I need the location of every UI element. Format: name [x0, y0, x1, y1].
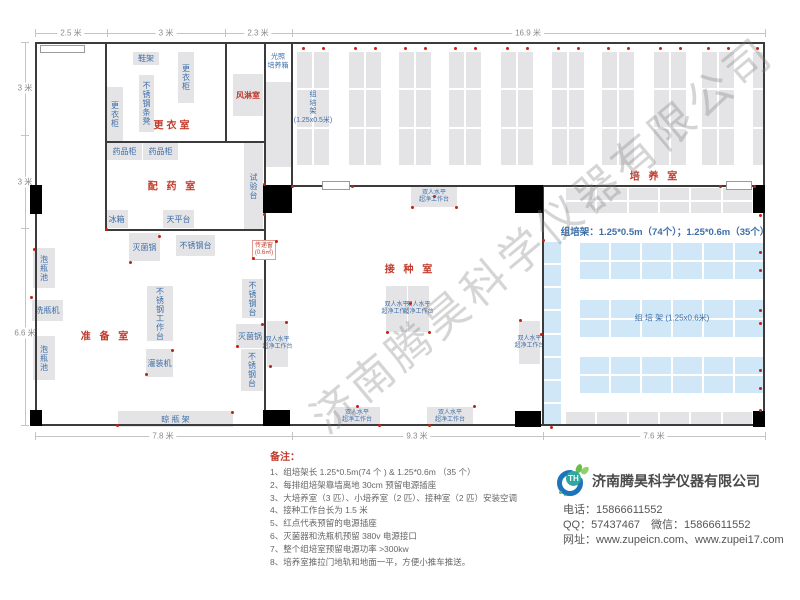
culture-rack [501, 52, 533, 165]
culture-rack [449, 52, 481, 165]
stainless-table: 不锈钢台 [242, 279, 263, 318]
rack-cell [642, 243, 671, 260]
rack-cell [544, 311, 561, 332]
dimension-tick [543, 432, 544, 440]
room-label: 更衣室 [154, 117, 193, 132]
power-socket-dot [707, 47, 710, 50]
company-phone: 电话：15866611552 [563, 501, 662, 517]
structural-column [515, 185, 543, 213]
sterilizer-pot: 灭菌锅 [236, 324, 264, 348]
rack-cell [580, 376, 609, 393]
rack-cell [704, 262, 733, 279]
wall [105, 141, 265, 143]
dimension-label: 3 米 [156, 28, 177, 39]
rack-cell [619, 129, 634, 165]
transfer-window: 传递窗(0.6㎡) [252, 240, 276, 260]
power-socket-dot [759, 214, 762, 217]
notes-list: 1、组培架长 1.25*0.5m(74 个 ) & 1.25*0.6m （35 … [270, 466, 517, 568]
structural-column [753, 411, 765, 427]
power-socket-dot [753, 185, 756, 188]
rack-cell [702, 129, 717, 165]
dimension-tick [35, 29, 36, 37]
rack-cell [671, 129, 686, 165]
locker-cabinet: 更衣柜 [178, 52, 194, 103]
wall [264, 42, 266, 426]
power-socket-dot [506, 47, 509, 50]
wall [105, 42, 107, 231]
dimension-label: 2.5 米 [57, 28, 84, 39]
structural-column [515, 411, 541, 427]
wall [35, 424, 765, 426]
rack-cell [416, 129, 431, 165]
rack-cell [642, 262, 671, 279]
power-socket-dot [474, 47, 477, 50]
wall [542, 185, 544, 426]
annotation-label: 组培架：1.25*0.5m（74个）；1.25*0.6m（35个） [561, 224, 770, 238]
power-socket-dot [374, 47, 377, 50]
rack-cell [691, 188, 720, 200]
rack-cell [314, 129, 329, 165]
bench-label: 超净工作台 [515, 343, 545, 350]
power-socket-dot [291, 185, 294, 188]
rack-cell [544, 381, 561, 402]
culture-rack-blue [580, 243, 764, 279]
rack-cell [566, 202, 595, 214]
power-socket-dot [550, 426, 553, 429]
power-socket-dot [607, 47, 610, 50]
rack-cell [673, 357, 702, 374]
rack-cell [366, 90, 381, 126]
power-socket-dot [473, 405, 476, 408]
power-socket-dot [659, 47, 662, 50]
rack-cell [544, 265, 561, 286]
rack-cell [704, 376, 733, 393]
rack-cell [660, 202, 689, 214]
rack-cell [597, 202, 626, 214]
balance-table: 天平台 [163, 210, 194, 228]
rack-cell [723, 202, 752, 214]
rack-cell [580, 320, 609, 338]
clean-bench: 双人水平超净工作台 [408, 286, 429, 332]
logo-dot [564, 494, 566, 496]
power-socket-dot [433, 195, 436, 198]
bench-label: 超净工作台 [435, 417, 465, 424]
rack-cell [466, 90, 481, 126]
rack-cell [501, 90, 516, 126]
power-socket-dot [386, 331, 389, 334]
rack-cell [619, 90, 634, 126]
rack-cell [580, 300, 609, 318]
structural-column [30, 185, 42, 214]
rack-cell [719, 52, 734, 88]
rack-cell [552, 90, 567, 126]
rack-cell [671, 52, 686, 88]
dimension-label: 2.3 米 [244, 28, 271, 39]
bench-label: 双人水平 [438, 410, 462, 417]
dimension-tick [765, 29, 766, 37]
structural-column [753, 185, 765, 213]
power-socket-dot [428, 331, 431, 334]
rack-cell [399, 129, 414, 165]
power-socket-dot [759, 309, 762, 312]
dimension-label: 3 米 [15, 83, 36, 94]
power-socket-dot [756, 47, 759, 50]
locker-cabinet: 更衣柜 [107, 87, 123, 141]
power-socket-dot [158, 235, 161, 238]
rack-cell [349, 129, 364, 165]
rack-cell [297, 129, 312, 165]
rack-cell [611, 243, 640, 260]
bench-label: 双人水平 [518, 336, 542, 343]
note-item: 1、组培架长 1.25*0.5m(74 个 ) & 1.25*0.6m （35 … [270, 466, 517, 479]
rack-cell [466, 129, 481, 165]
clean-bench: 双人水平超净工作台 [519, 321, 540, 364]
rack-cell [416, 90, 431, 126]
notes-title: 备注： [270, 448, 517, 463]
wall [35, 42, 37, 426]
dimension-tick [35, 432, 36, 440]
rack-cell [660, 188, 689, 200]
rack-cell [501, 129, 516, 165]
stainless-table: 不锈钢台 [241, 349, 263, 391]
note-item: 2、每排组培架靠墙离地 30cm 预留电源插座 [270, 479, 517, 492]
company-name: 济南腾昊科学仪器有限公司 [592, 471, 760, 491]
note-item: 8、培养室推拉门地轨和地面一平，方便小推车推送。 [270, 556, 517, 569]
light-incubator-box [266, 82, 291, 167]
dimension-label: 16.9 米 [512, 28, 544, 39]
power-socket-dot [105, 228, 108, 231]
power-socket-dot [557, 47, 560, 50]
room-label: 接 种 室 [385, 261, 436, 276]
room-label: 准 备 室 [81, 328, 132, 343]
rack-cell [544, 242, 561, 263]
transfer-window-label: 传递窗 [255, 243, 273, 250]
rack-cell [704, 357, 733, 374]
power-socket-dot [519, 319, 522, 322]
culture-rack [552, 52, 584, 165]
rack-cell [544, 335, 561, 356]
culture-rack [602, 52, 634, 165]
rack-cell [691, 202, 720, 214]
rack-cell [735, 376, 764, 393]
rack-cell [297, 52, 312, 88]
power-socket-dot [145, 373, 148, 376]
rack-cell [569, 52, 584, 88]
rack-cell [704, 243, 733, 260]
bench-label: 双人水平 [266, 337, 290, 344]
rack-cell [569, 90, 584, 126]
rack-cell [544, 358, 561, 379]
sterilizer-pot: 灭菌锅 [129, 233, 160, 261]
wall [225, 42, 227, 143]
wall [105, 229, 266, 231]
rack-cell [544, 288, 561, 309]
rack-cell [349, 90, 364, 126]
rack-cell [597, 188, 626, 200]
rack-cell [399, 52, 414, 88]
power-socket-dot [542, 239, 545, 242]
power-socket-dot [759, 387, 762, 390]
door [40, 45, 85, 53]
stainless-table: 不锈钢台 [176, 235, 215, 256]
medicine-cabinet: 药品柜 [143, 143, 178, 160]
transfer-window-label: (0.6㎡) [255, 250, 273, 257]
rack-cell [629, 188, 658, 200]
company-logo-icon: TH [556, 465, 590, 497]
power-socket-dot [252, 257, 255, 260]
power-socket-dot [455, 206, 458, 209]
power-socket-dot [354, 47, 357, 50]
dimension-tick [292, 432, 293, 440]
power-socket-dot [759, 369, 762, 372]
dimension-tick [765, 432, 766, 440]
note-item: 7、整个组培室预留电源功率 >300kw [270, 543, 517, 556]
power-socket-dot [727, 47, 730, 50]
power-socket-dot [261, 323, 264, 326]
bench-label: 超净工作台 [263, 344, 293, 351]
dimension-tick [225, 29, 226, 37]
culture-rack-blue [544, 242, 561, 425]
culture-rack [566, 188, 752, 213]
door [726, 181, 752, 190]
rack-cell [544, 404, 561, 425]
power-socket-dot [129, 261, 132, 264]
rack-cell [314, 52, 329, 88]
culture-rack [702, 52, 734, 165]
power-socket-dot [424, 47, 427, 50]
power-socket-dot [322, 47, 325, 50]
power-socket-dot [759, 322, 762, 325]
note-item: 5、红点代表预留的电源插座 [270, 517, 517, 530]
rack-cell [518, 129, 533, 165]
power-socket-dot [526, 47, 529, 50]
rack-cell [702, 52, 717, 88]
rack-cell [602, 90, 617, 126]
rack-cell [611, 376, 640, 393]
rack-cell [654, 90, 669, 126]
rack-cell [702, 90, 717, 126]
stainless-worktable: 不锈钢工作台 [147, 286, 173, 341]
rack-cell [719, 90, 734, 126]
dimension-label: 7.8 米 [149, 431, 176, 442]
dimension-tick [21, 425, 29, 426]
power-socket-dot [275, 240, 278, 243]
rack-cell [552, 52, 567, 88]
room-label: 配 药 室 [148, 178, 199, 193]
rack-cell [366, 52, 381, 88]
rack-cell [552, 129, 567, 165]
clean-bench: 双人水平超净工作台 [267, 321, 288, 367]
rack-cell [366, 129, 381, 165]
notes-section: 备注： 1、组培架长 1.25*0.5m(74 个 ) & 1.25*0.6m … [270, 448, 517, 568]
rack-cell [580, 262, 609, 279]
dimension-tick [21, 228, 29, 229]
logo-initials: TH [566, 471, 581, 486]
power-socket-dot [285, 321, 288, 324]
rack-cell [449, 129, 464, 165]
culture-rack [654, 52, 686, 165]
structural-column [263, 410, 290, 426]
dimension-tick [107, 29, 108, 37]
rack-cell [673, 262, 702, 279]
rack-cell [602, 52, 617, 88]
fridge: 冰箱 [105, 210, 128, 228]
medicine-cabinet: 药品柜 [107, 143, 142, 160]
rack-cell [580, 357, 609, 374]
structural-column [263, 185, 292, 213]
culture-rack-blue [580, 357, 764, 393]
power-socket-dot [263, 183, 266, 186]
rack-cell [673, 243, 702, 260]
bench-label: 双人水平 [345, 410, 369, 417]
rack-cell [566, 188, 595, 200]
dimension-label: 9.3 米 [403, 431, 430, 442]
company-qq-wechat: QQ：57437467 微信：15866611552 [563, 516, 751, 532]
power-socket-dot [454, 47, 457, 50]
rack-cell [642, 376, 671, 393]
rack-cell [580, 243, 609, 260]
power-socket-dot [231, 411, 234, 414]
annotation-label: 组 培 架 (1.25x0.6米) [635, 313, 710, 324]
power-socket-dot [404, 47, 407, 50]
stainless-bench: 不锈钢条凳 [139, 75, 154, 132]
logo-dot [559, 491, 562, 494]
rack-cell [654, 52, 669, 88]
rack-cell [569, 129, 584, 165]
structural-column [30, 410, 42, 426]
dimension-tick [292, 29, 293, 37]
power-socket-dot [627, 47, 630, 50]
power-socket-dot [719, 185, 722, 188]
note-item: 4、接种工作台长为 1.5 米 [270, 504, 517, 517]
power-socket-dot [263, 213, 266, 216]
air-shower-room: 风淋室 [233, 74, 263, 116]
rack-cell [654, 129, 669, 165]
rack-cell [602, 129, 617, 165]
note-item: 3、大培养室（3 匹）、小培养室（2 匹）、接种室（2 匹）安装空调 [270, 492, 517, 505]
rack-cell [673, 376, 702, 393]
power-socket-dot [378, 424, 381, 427]
power-socket-dot [236, 345, 239, 348]
rack-cell [449, 90, 464, 126]
rack-cell [399, 90, 414, 126]
rack-cell [466, 52, 481, 88]
power-socket-dot [759, 269, 762, 272]
bench-label: 双人水平 [385, 302, 409, 309]
filling-machine: 灌装机 [146, 349, 173, 377]
test-bench: 试验台 [244, 143, 263, 229]
power-socket-dot [577, 47, 580, 50]
rack-cell [449, 52, 464, 88]
rack-cell [642, 357, 671, 374]
rack-cell [518, 52, 533, 88]
dimension-line [35, 33, 765, 34]
power-socket-dot [428, 424, 431, 427]
dimension-tick [21, 135, 29, 136]
door [322, 181, 350, 190]
power-socket-dot [116, 424, 119, 427]
dimension-tick [21, 42, 29, 43]
rack-cell [611, 262, 640, 279]
culture-rack [349, 52, 381, 165]
rack-cell [629, 202, 658, 214]
bench-label: 超净工作台 [404, 309, 434, 316]
power-socket-dot [540, 333, 543, 336]
rack-cell [719, 129, 734, 165]
culture-rack [399, 52, 431, 165]
rack-cell [619, 52, 634, 88]
rack-cell [671, 90, 686, 126]
rack-cell [518, 90, 533, 126]
wall [35, 42, 765, 44]
note-item: 6、灭菌器和洗瓶机预留 380v 电源接口 [270, 530, 517, 543]
rack-cell [611, 357, 640, 374]
room-label: 培 养 室 [630, 168, 681, 183]
floorplan-canvas: 济南腾昊科学仪器有限公司 鞋架更衣柜不锈钢条凳更衣柜风淋室药品柜药品柜试验台冰箱… [0, 0, 800, 600]
dimension-label: 7.6 米 [640, 431, 667, 442]
power-socket-dot [302, 47, 305, 50]
annotation-label: 组 培 架 (1.25x0.5米) [294, 91, 333, 125]
power-socket-dot [171, 349, 174, 352]
dimension-line [25, 42, 26, 425]
power-socket-dot [269, 365, 272, 368]
power-socket-dot [33, 248, 36, 251]
company-website: 网址：www.zupeicn.com、www.zupei17.com [563, 531, 784, 547]
power-socket-dot [759, 409, 762, 412]
rack-cell [416, 52, 431, 88]
shoe-rack: 鞋架 [133, 52, 159, 65]
wall [291, 42, 293, 187]
power-socket-dot [411, 206, 414, 209]
rack-cell [349, 52, 364, 88]
power-socket-dot [409, 302, 412, 305]
power-socket-dot [356, 405, 359, 408]
rack-cell [501, 52, 516, 88]
bench-label: 超净工作台 [342, 417, 372, 424]
power-socket-dot [351, 185, 354, 188]
annotation-label: 光照 培养箱 [268, 54, 289, 71]
power-socket-dot [759, 251, 762, 254]
power-socket-dot [679, 47, 682, 50]
power-socket-dot [30, 296, 33, 299]
